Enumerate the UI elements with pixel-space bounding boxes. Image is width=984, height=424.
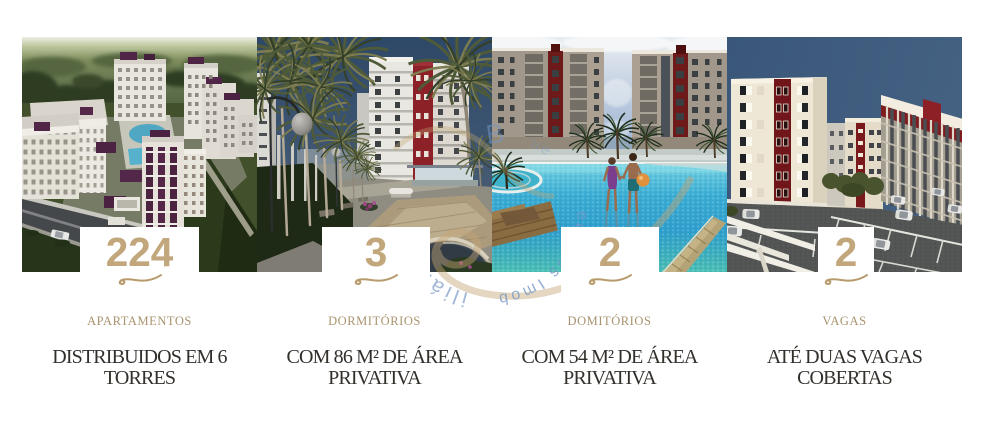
svg-text:ue: ue: [528, 135, 555, 161]
